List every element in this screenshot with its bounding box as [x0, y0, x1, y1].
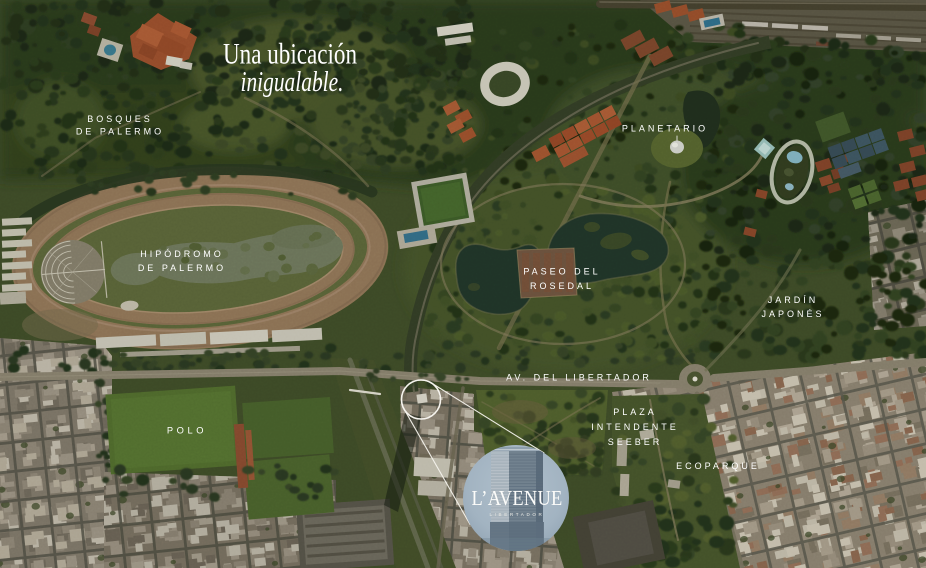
svg-text:JAPONÉS: JAPONÉS	[761, 309, 824, 319]
svg-text:PLAZA: PLAZA	[613, 407, 657, 417]
svg-text:AV. DEL LIBERTADOR: AV. DEL LIBERTADOR	[506, 373, 652, 383]
svg-text:SEEBER: SEEBER	[608, 437, 663, 447]
svg-text:PLANETARIO: PLANETARIO	[622, 124, 708, 134]
svg-text:ROSEDAL: ROSEDAL	[530, 281, 594, 291]
svg-text:POLO: POLO	[167, 426, 207, 436]
svg-text:HIPÓDROMO: HIPÓDROMO	[140, 249, 224, 259]
svg-text:INTENDENTE: INTENDENTE	[591, 422, 679, 432]
svg-text:JARDÍN: JARDÍN	[768, 295, 819, 305]
svg-text:LIBERTADOR: LIBERTADOR	[490, 512, 545, 517]
svg-text:BOSQUES: BOSQUES	[87, 114, 153, 124]
svg-text:DE PALERMO: DE PALERMO	[76, 127, 164, 137]
svg-text:DE PALERMO: DE PALERMO	[138, 263, 226, 273]
svg-text:inigualable.: inigualable.	[241, 66, 344, 98]
svg-text:ECOPARQUE: ECOPARQUE	[676, 461, 760, 471]
svg-text:PASEO DEL: PASEO DEL	[523, 267, 600, 277]
svg-text:L’AVENUE: L’AVENUE	[472, 486, 563, 510]
